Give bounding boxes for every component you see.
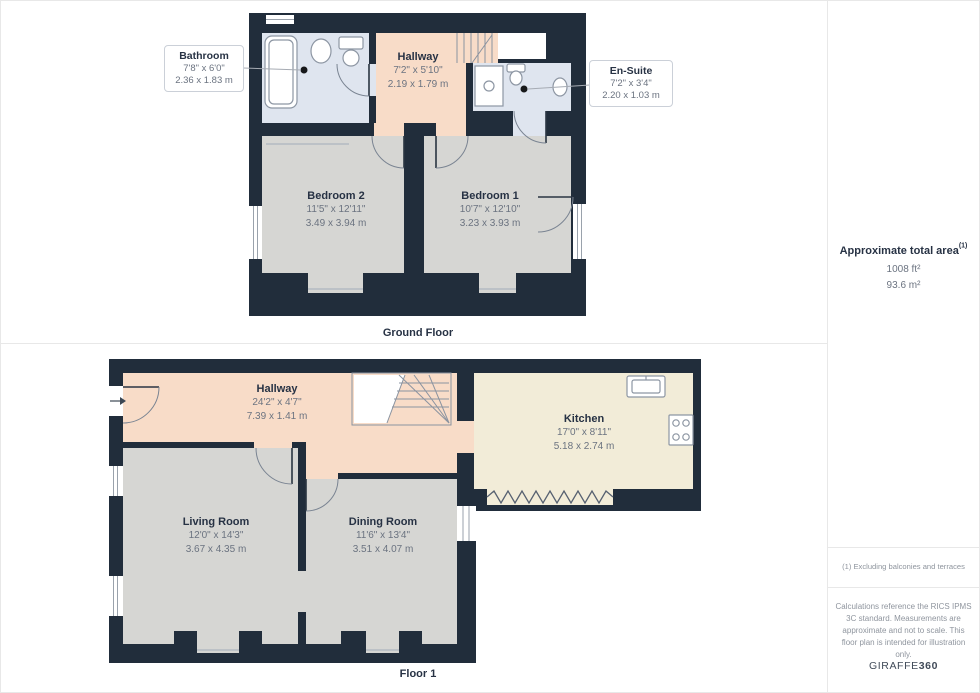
room-name: Dining Room [349, 515, 417, 529]
room-dim-metric: 2.20 x 1.03 m [595, 90, 667, 102]
room-dim-imperial: 24'2" x 4'7" [247, 396, 308, 410]
room-label-kitchen: Kitchen 17'0" x 8'11" 5.18 x 2.74 m [554, 412, 615, 453]
hob-icon [669, 415, 693, 445]
window [266, 15, 294, 24]
room-name: Hallway [388, 50, 449, 64]
total-area-metric: 93.6 m² [828, 280, 979, 291]
room-name: Bedroom 2 [306, 189, 367, 203]
brand-logo: GIRAFFE360 [828, 660, 979, 672]
room-dim-metric: 7.39 x 1.41 m [247, 410, 308, 424]
shower-icon [475, 66, 503, 106]
window [249, 206, 262, 259]
stair-landing [498, 33, 546, 59]
room-dim-imperial: 17'0" x 8'11" [554, 426, 615, 440]
room-dim-imperial: 7'2" x 5'10" [388, 64, 449, 78]
window [457, 506, 476, 541]
ground-floor-caption: Ground Floor [383, 327, 453, 339]
total-area-block: Approximate total area(1) 1008 ft² 93.6 … [828, 241, 979, 291]
room-dim-metric: 2.19 x 1.79 m [388, 78, 449, 92]
room-label-bedroom2: Bedroom 2 11'5" x 12'11" 3.49 x 3.94 m [306, 189, 367, 230]
total-area-footnote-marker: (1) [959, 243, 968, 250]
total-area-title: Approximate total area [840, 245, 959, 257]
ensuite-callout-anchor [521, 86, 528, 93]
total-area-imperial: 1008 ft² [828, 264, 979, 275]
room-name: En-Suite [595, 65, 667, 78]
sink-icon [311, 39, 331, 63]
bathroom-callout-anchor [301, 67, 308, 74]
floorplan-drawing [1, 1, 979, 692]
kitchen-sink-icon [627, 376, 665, 397]
window [109, 466, 123, 496]
disclaimer-text: Calculations reference the RICS IPMS 3C … [834, 601, 973, 661]
room-label-f1-hallway: Hallway 24'2" x 4'7" 7.39 x 1.41 m [247, 382, 308, 423]
room-dim-metric: 2.36 x 1.83 m [170, 75, 238, 87]
room-dim-imperial: 12'0" x 14'3" [183, 529, 250, 543]
room-dim-imperial: 7'2" x 3'4" [595, 78, 667, 90]
room-dim-imperial: 10'7" x 12'10" [460, 203, 521, 217]
floor1-plan [109, 359, 701, 663]
room-dim-imperial: 11'6" x 13'4" [349, 529, 417, 543]
room-name: Bathroom [170, 50, 238, 63]
room-dim-imperial: 11'5" x 12'11" [306, 203, 367, 217]
floorplan-page: Hallway 7'2" x 5'10" 2.19 x 1.79 m Bedro… [0, 0, 980, 693]
room-dim-metric: 5.18 x 2.74 m [554, 440, 615, 454]
brand-name: GIRAFFE [869, 660, 919, 672]
room-dim-metric: 3.67 x 4.35 m [183, 543, 250, 557]
room-label-bedroom1: Bedroom 1 10'7" x 12'10" 3.23 x 3.93 m [460, 189, 521, 230]
room-dim-imperial: 7'8" x 6'0" [170, 63, 238, 75]
room-label-dining-room: Dining Room 11'6" x 13'4" 3.51 x 4.07 m [349, 515, 417, 556]
bathtub-icon [265, 36, 297, 108]
room-dim-metric: 3.49 x 3.94 m [306, 217, 367, 231]
room-label-gf-hallway: Hallway 7'2" x 5'10" 2.19 x 1.79 m [388, 50, 449, 91]
footnote-text: (1) Excluding balconies and terraces [828, 562, 979, 571]
room-dim-metric: 3.23 x 3.93 m [460, 217, 521, 231]
room-name: Kitchen [554, 412, 615, 426]
window [109, 576, 123, 616]
floor1-caption: Floor 1 [400, 668, 437, 680]
ensuite-callout: En-Suite 7'2" x 3'4" 2.20 x 1.03 m [589, 60, 673, 107]
bathroom-callout: Bathroom 7'8" x 6'0" 2.36 x 1.83 m [164, 45, 244, 92]
brand-suffix: 360 [919, 660, 938, 672]
window [573, 204, 586, 259]
room-name: Hallway [247, 382, 308, 396]
room-label-living-room: Living Room 12'0" x 14'3" 3.67 x 4.35 m [183, 515, 250, 556]
room-name: Living Room [183, 515, 250, 529]
dining-room-floor [306, 479, 457, 644]
room-dim-metric: 3.51 x 4.07 m [349, 543, 417, 557]
room-name: Bedroom 1 [460, 189, 521, 203]
